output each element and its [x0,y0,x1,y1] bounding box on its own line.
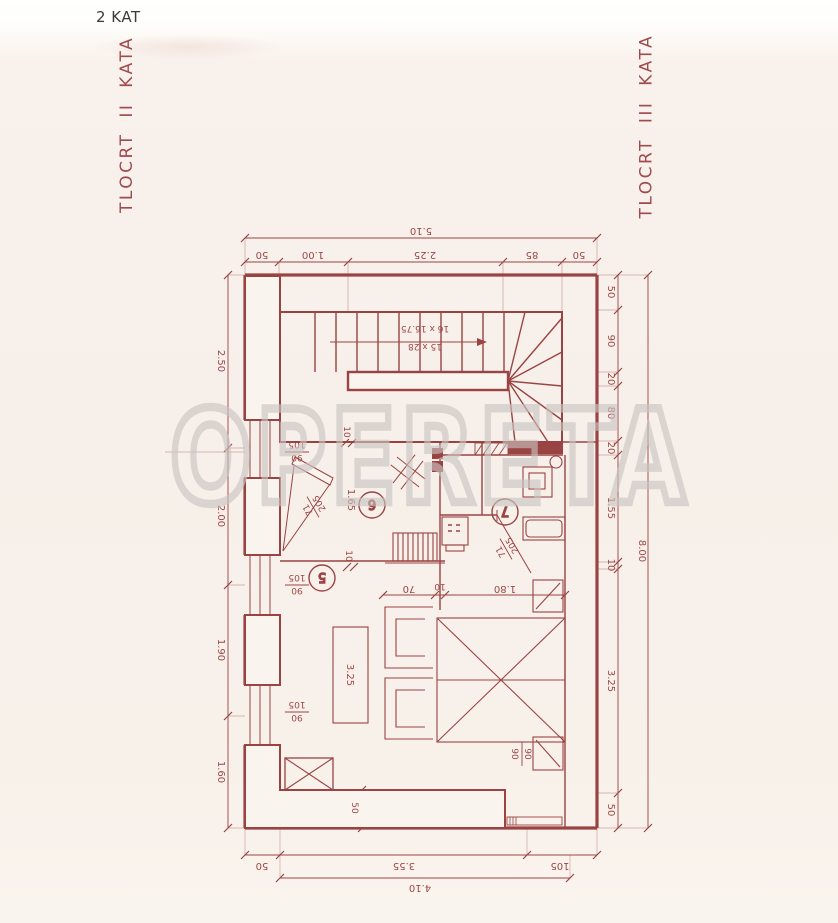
dim-right: 50 90 20 80 20 1.55 10 3.25 50 8.00 [605,286,647,817]
dim-top: 5.10 50 1.00 2.25 85 50 [256,225,586,260]
window-label-2: 90 105 [285,572,309,595]
dim-right-1: 90 [605,335,616,348]
dim-top-3: 85 [526,249,539,260]
dim-bottom-total: 4.10 [409,882,431,893]
window-4-height: 90 [509,748,519,760]
dim-bottom-0: 50 [256,860,269,871]
dim-bed-2: 1.80 [494,583,516,594]
dim-bottom: 50 3.55 105 4.10 [256,860,570,893]
threshold-strip [507,817,562,825]
dim-bottom-1: 3.55 [393,860,415,871]
room-number-living: 5 [318,569,326,584]
extension-lines [165,238,648,878]
stair-rise-label: 16 x 16.75 [401,323,449,333]
dim-right-7: 3.25 [605,670,616,692]
dim-wall-thickness: 50 [349,802,359,814]
dim-bed-0: 70 [403,583,416,594]
outer-walls [245,275,597,828]
dim-bed-1: 10 [434,581,446,591]
window-4-width: 90 [522,748,532,760]
door-2-width: 71 [494,544,508,559]
bottom-wall [245,745,505,828]
stair-run-label: 15 x 28 [408,341,442,351]
bed [437,618,565,742]
dim-partition-2: 10 [343,550,353,562]
dim-right-0: 50 [605,286,616,299]
armchair-2 [385,678,433,739]
dim-table-length: 3.25 [344,664,355,686]
dim-top-2: 2.25 [414,249,436,260]
stair-walk-arrow [477,338,487,346]
dim-right-6: 10 [605,559,616,572]
dim-right-8: 50 [605,804,616,817]
radiator-hall [385,533,445,563]
dim-left-0: 2.50 [215,350,226,372]
window-3-height: 105 [288,699,305,709]
left-wall-piers [245,276,505,828]
window-label-4: 90 90 [509,742,532,766]
armchair-1 [385,607,433,668]
watermark-text: OPERETA [170,384,690,533]
dim-top-0: 50 [256,249,269,260]
window-2-width: 90 [291,585,303,595]
door-label-2: 71 205 [491,532,523,564]
dim-left-2: 1.90 [215,639,226,661]
window-3-width: 90 [291,712,303,722]
stair-labels: 16 x 16.75 15 x 28 [401,323,449,351]
dimension-lines [228,238,648,878]
window-label-3: 90 105 [285,699,309,722]
dim-top-4: 50 [573,249,586,260]
shaft-box [285,758,333,790]
dim-right-total: 8.00 [636,540,647,562]
dim-bottom-2: 105 [550,860,569,871]
dim-top-1: 1.00 [302,249,324,260]
nightstand-top [533,580,563,612]
scanned-floor-plan-page: 2 KAT TLOCRT II KATA TLOCRT III KATA [0,0,838,923]
dim-top-total: 5.10 [410,225,432,236]
window-2-height: 105 [288,572,305,582]
dim-left-3: 1.60 [215,761,226,783]
floor-plan-svg: 16 x 16.75 15 x 28 [0,0,838,923]
